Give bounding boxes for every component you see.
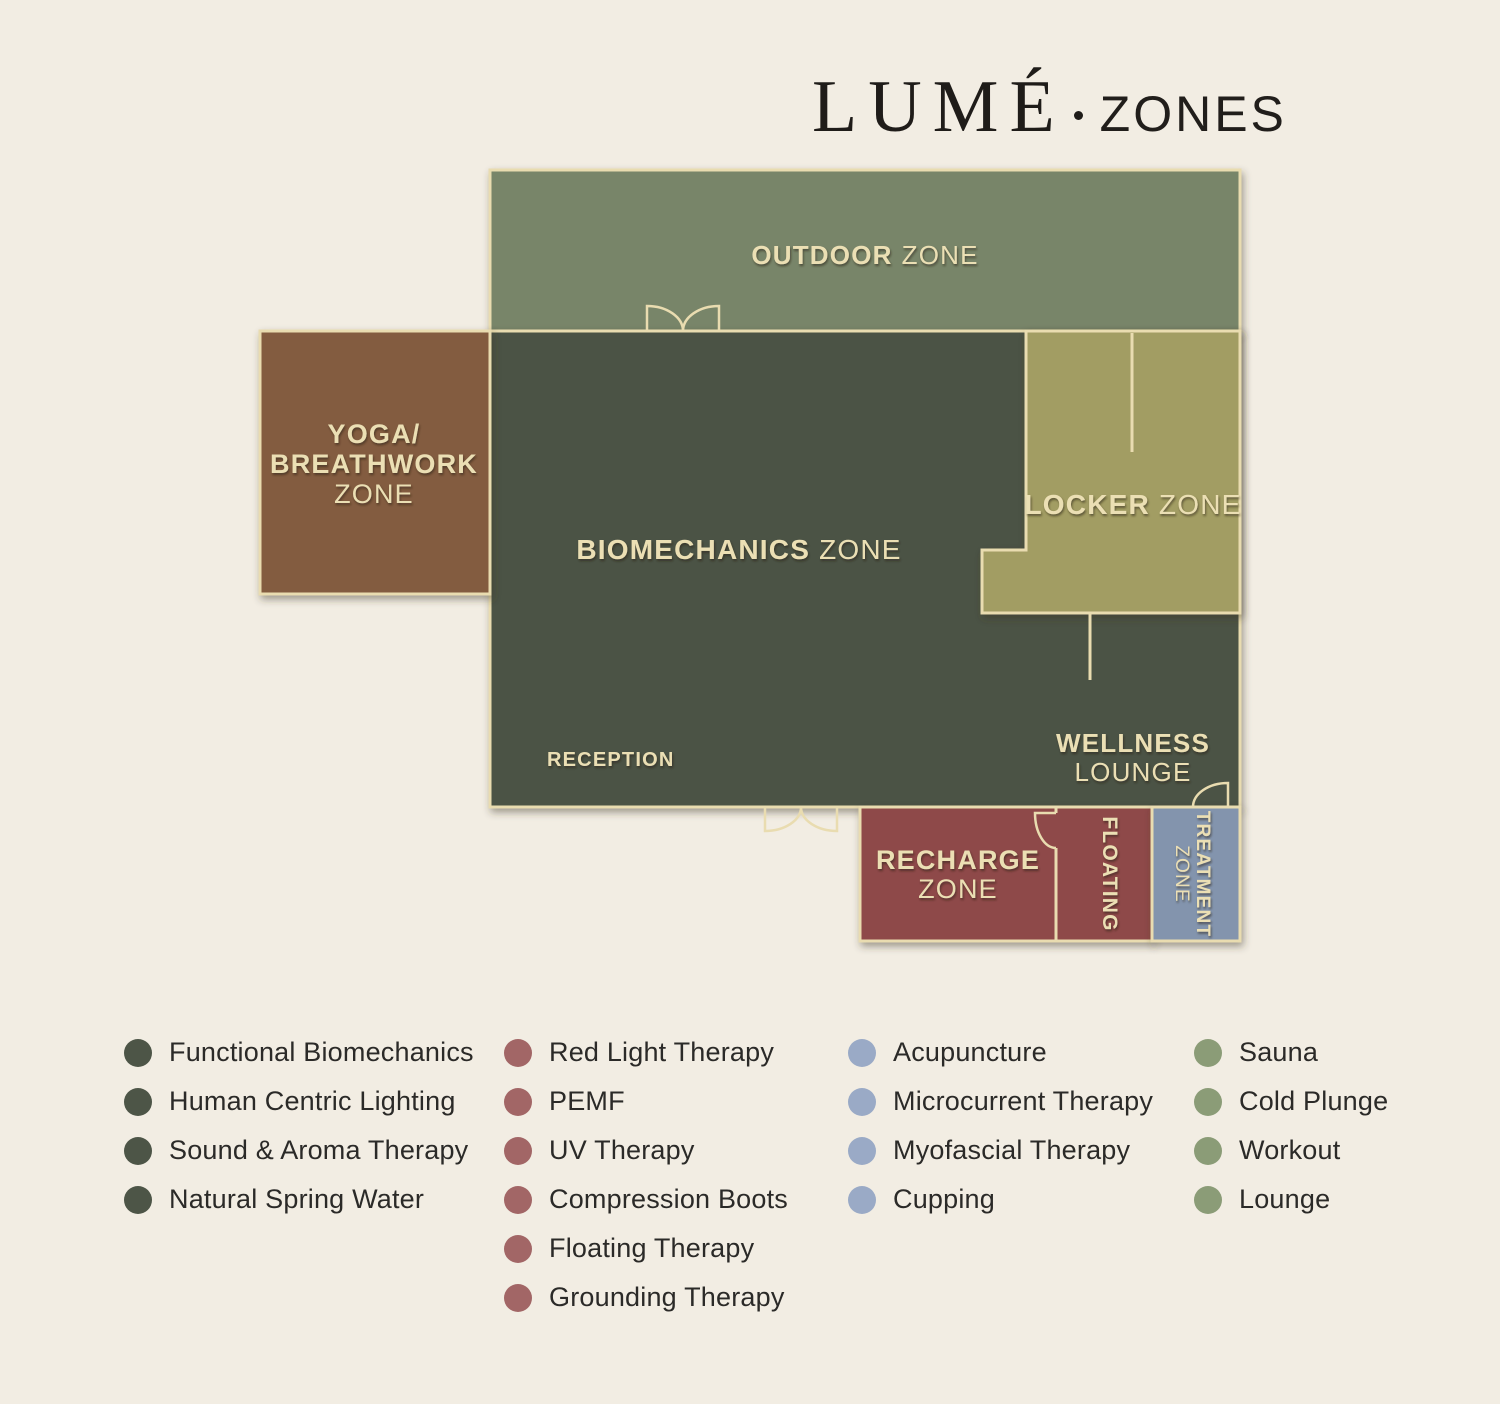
legend-dot-icon bbox=[504, 1235, 532, 1263]
legend-item: Floating Therapy bbox=[504, 1224, 788, 1273]
legend-dot-icon bbox=[1194, 1186, 1222, 1214]
legend-item: Workout bbox=[1194, 1126, 1388, 1175]
legend-dot-icon bbox=[848, 1137, 876, 1165]
legend-dot-icon bbox=[124, 1039, 152, 1067]
legend-item: Human Centric Lighting bbox=[124, 1077, 474, 1126]
legend-item: UV Therapy bbox=[504, 1126, 788, 1175]
zone-locker-label: LOCKERZONE bbox=[1024, 489, 1241, 520]
legend-dot-icon bbox=[1194, 1137, 1222, 1165]
legend-dot-icon bbox=[848, 1039, 876, 1067]
legend-dot-icon bbox=[124, 1088, 152, 1116]
legend-item: Sound & Aroma Therapy bbox=[124, 1126, 474, 1175]
legend-column-outdoor-amenities: Sauna Cold Plunge Workout Lounge bbox=[1194, 1028, 1388, 1224]
legend-item: Microcurrent Therapy bbox=[848, 1077, 1153, 1126]
zone-outdoor-label: OUTDOORZONE bbox=[751, 240, 978, 270]
legend-item: Acupuncture bbox=[848, 1028, 1153, 1077]
legend-column-biomechanics: Functional Biomechanics Human Centric Li… bbox=[124, 1028, 474, 1224]
legend-item: Myofascial Therapy bbox=[848, 1126, 1153, 1175]
double-door-icon-reception bbox=[765, 807, 837, 831]
legend-dot-icon bbox=[848, 1186, 876, 1214]
legend-item: Compression Boots bbox=[504, 1175, 788, 1224]
legend-column-recharge: Red Light Therapy PEMF UV Therapy Compre… bbox=[504, 1028, 788, 1322]
legend-dot-icon bbox=[124, 1137, 152, 1165]
zone-wellness-label: WELLNESSLOUNGE bbox=[1056, 728, 1210, 787]
zone-floating-label: FLOATING bbox=[1098, 816, 1121, 931]
legend-column-treatment: Acupuncture Microcurrent Therapy Myofasc… bbox=[848, 1028, 1153, 1224]
legend-dot-icon bbox=[1194, 1088, 1222, 1116]
zone-treatment-label-2: ZONE bbox=[1171, 845, 1192, 903]
legend-dot-icon bbox=[848, 1088, 876, 1116]
zone-treatment-label: TREATMENT bbox=[1192, 811, 1213, 938]
legend-dot-icon bbox=[1194, 1039, 1222, 1067]
legend-item: Sauna bbox=[1194, 1028, 1388, 1077]
reception-label: RECEPTION bbox=[547, 749, 674, 771]
legend-dot-icon bbox=[124, 1186, 152, 1214]
legend-item: Cupping bbox=[848, 1175, 1153, 1224]
legend-item: PEMF bbox=[504, 1077, 788, 1126]
zone-biomechanics-label: BIOMECHANICSZONE bbox=[576, 534, 901, 565]
legend-dot-icon bbox=[504, 1186, 532, 1214]
legend-dot-icon bbox=[504, 1088, 532, 1116]
legend-item: Red Light Therapy bbox=[504, 1028, 788, 1077]
legend-item: Lounge bbox=[1194, 1175, 1388, 1224]
legend-dot-icon bbox=[504, 1284, 532, 1312]
legend-dot-icon bbox=[504, 1137, 532, 1165]
legend-item: Cold Plunge bbox=[1194, 1077, 1388, 1126]
legend-dot-icon bbox=[504, 1039, 532, 1067]
legend-item: Functional Biomechanics bbox=[124, 1028, 474, 1077]
legend-item: Grounding Therapy bbox=[504, 1273, 788, 1322]
legend-item: Natural Spring Water bbox=[124, 1175, 474, 1224]
